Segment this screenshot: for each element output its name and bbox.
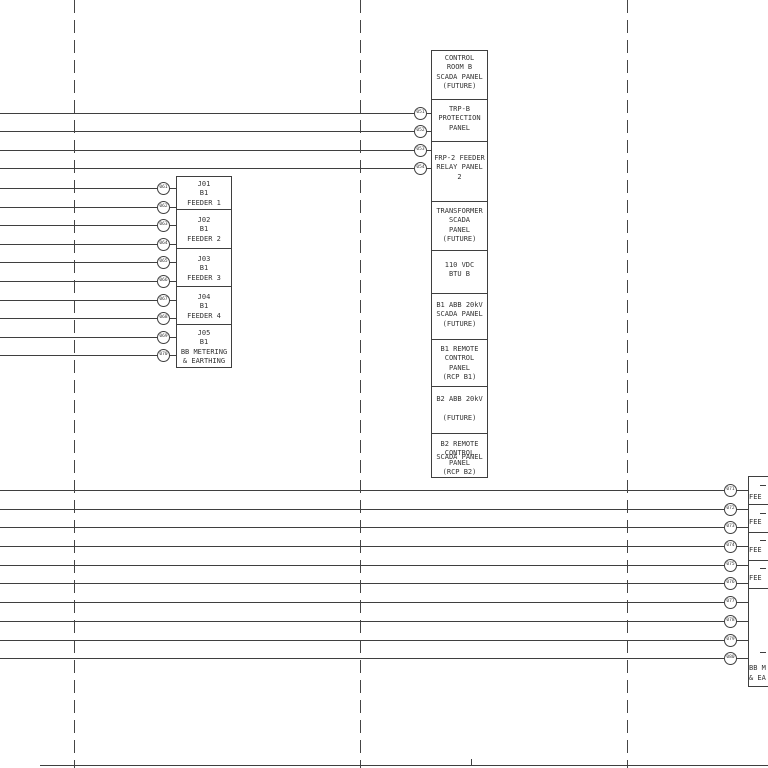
cable-tag: 073	[724, 521, 737, 534]
panel-cell-line: FEE	[749, 546, 762, 554]
cable-line	[0, 527, 724, 528]
panel-cell-b1-abb-scada: B1 ABB 20kV SCADA PANEL (FUTURE)	[432, 293, 487, 339]
zone-separator-line-2	[360, 0, 361, 768]
panel-cell-line: PROTECTION	[432, 114, 487, 123]
cable-stub	[736, 658, 748, 659]
cable-tag: 076	[724, 577, 737, 590]
panel-cell-line: (FUTURE)	[432, 414, 487, 423]
panel-cell-line: SCADA PANEL	[432, 310, 487, 319]
panel-cell-line: B1	[177, 264, 231, 273]
cable-stub	[736, 583, 748, 584]
panel-cell-line: BTU B	[432, 270, 487, 279]
cable-tag: 074	[724, 540, 737, 553]
cable-line	[0, 509, 724, 510]
panel-cell-line: (FUTURE)	[432, 82, 487, 91]
panel-cell-line: FEE	[749, 493, 762, 501]
panel-cell-divider	[749, 532, 768, 533]
panel-cell-b1-remote: B1 REMOTE CONTROL PANEL (RCP B1)	[432, 339, 487, 386]
panel-cell-110vdc: 110 VDC BTU B	[432, 250, 487, 293]
cable-tag: 069	[157, 331, 170, 344]
panel-cell-j02: J02 B1 FEEDER 2	[177, 209, 231, 248]
cable-stub	[736, 640, 748, 641]
cable-line	[0, 640, 724, 641]
panel-cell-line: J01	[177, 180, 231, 189]
panel-cell-line: ROOM B	[432, 63, 487, 72]
cable-line	[0, 131, 414, 132]
cable-line	[0, 546, 724, 547]
sheet-border-tick	[471, 759, 472, 765]
panel-cell-line: & EA	[749, 674, 766, 682]
panel-cell-line: (RCP B2)	[432, 468, 487, 477]
cable-tag: 053	[414, 144, 427, 157]
panel-cell-overlap-text: SCADA PANEL	[432, 453, 487, 462]
panel-stack-top: CONTROL ROOM B SCADA PANEL (FUTURE) TRP-…	[431, 50, 488, 478]
cable-tag: 066	[157, 275, 170, 288]
panel-cell-line: 2	[432, 173, 487, 182]
cable-line	[0, 225, 157, 226]
panel-cell-b2-abb: B2 ABB 20kV (FUTURE)	[432, 386, 487, 432]
panel-cell-line: RELAY PANEL	[432, 163, 487, 172]
cut-text-mark	[760, 540, 766, 541]
panel-cell-trp-b: TRP-B PROTECTION PANEL	[432, 99, 487, 141]
panel-cell-line: SCADA	[432, 216, 487, 225]
panel-cell-line: 110 VDC	[432, 261, 487, 270]
cable-line	[0, 621, 724, 622]
cable-line	[0, 168, 414, 169]
cable-stub	[736, 602, 748, 603]
panel-cell-divider	[749, 504, 768, 505]
cable-tag: 054	[414, 162, 427, 175]
panel-cell-line: PANEL	[432, 124, 487, 133]
cable-line	[0, 207, 157, 208]
panel-cell-line: J05	[177, 329, 231, 338]
cut-text-mark	[760, 652, 766, 653]
cable-line	[0, 150, 414, 151]
panel-cell-line: BB METERING	[177, 348, 231, 357]
cable-tag: 064	[157, 238, 170, 251]
cut-text-mark	[760, 485, 766, 486]
cable-line	[0, 583, 724, 584]
cable-tag: 051	[414, 107, 427, 120]
cable-line	[0, 113, 414, 114]
panel-cell-line: B1	[177, 338, 231, 347]
cable-line	[0, 337, 157, 338]
cable-stub	[736, 527, 748, 528]
cable-tag: 052	[414, 125, 427, 138]
panel-cell-b2-remote: B2 REMOTE CONTROL PANEL (RCP B2) SCADA P…	[432, 433, 487, 479]
zone-separator-line-3	[627, 0, 628, 768]
cable-tag: 063	[157, 219, 170, 232]
cable-tag: 065	[157, 256, 170, 269]
cable-line	[0, 602, 724, 603]
drawing-sheet: { "colors": {"line": "#3f3f3f", "text": …	[0, 0, 768, 768]
panel-cell-line: CONTROL	[432, 354, 487, 363]
panel-cell-line: CONTROL	[432, 54, 487, 63]
panel-cell-j03: J03 B1 FEEDER 3	[177, 248, 231, 286]
cable-tag: 070	[157, 349, 170, 362]
panel-cell-line	[432, 404, 487, 413]
panel-cell-line: SCADA PANEL	[432, 73, 487, 82]
cable-stub	[736, 509, 748, 510]
panel-cell-transformer-scada: TRANSFORMER SCADA PANEL (FUTURE)	[432, 201, 487, 250]
cable-line	[0, 318, 157, 319]
cable-line	[0, 658, 724, 659]
cable-tag: 068	[157, 312, 170, 325]
cut-text-mark	[760, 568, 766, 569]
panel-cell-line: FEE	[749, 574, 762, 582]
panel-cell-line: (FUTURE)	[432, 235, 487, 244]
cable-line	[0, 188, 157, 189]
panel-cell-line: PANEL	[432, 226, 487, 235]
cable-line	[0, 355, 157, 356]
cable-tag: 067	[157, 294, 170, 307]
cut-text-mark	[760, 513, 766, 514]
panel-cell-divider	[749, 588, 768, 589]
panel-cell-line: J02	[177, 216, 231, 225]
cable-line	[0, 244, 157, 245]
panel-cell-line: FRP-2 FEEDER	[432, 154, 487, 163]
cable-stub	[736, 565, 748, 566]
panel-cell-j01: J01 B1 FEEDER 1	[177, 177, 231, 209]
panel-cell-line: FEEDER 1	[177, 199, 231, 208]
panel-cell-line: (FUTURE)	[432, 320, 487, 329]
panel-cell-line: B1 ABB 20kV	[432, 301, 487, 310]
panel-stack-left: J01 B1 FEEDER 1 J02 B1 FEEDER 2 J03 B1 F…	[176, 176, 232, 368]
sheet-border-bottom	[40, 765, 768, 766]
panel-cell-line: B1	[177, 302, 231, 311]
panel-cell-divider	[749, 560, 768, 561]
panel-cell-line: BB M	[749, 664, 766, 672]
cable-tag: 061	[157, 182, 170, 195]
panel-cell-line: FEEDER 3	[177, 274, 231, 283]
cable-line	[0, 300, 157, 301]
panel-cell-line: FEE	[749, 518, 762, 526]
cable-tag: 080	[724, 652, 737, 665]
cable-stub	[736, 621, 748, 622]
panel-cell-frp-2: FRP-2 FEEDER RELAY PANEL 2	[432, 141, 487, 201]
panel-cell-line: B1	[177, 189, 231, 198]
panel-cell-j05: J05 B1 BB METERING & EARTHING	[177, 324, 231, 369]
cable-line	[0, 262, 157, 263]
cable-line	[0, 565, 724, 566]
panel-cell-line: B2 REMOTE	[432, 440, 487, 449]
cable-tag: 075	[724, 559, 737, 572]
cable-line	[0, 281, 157, 282]
cable-tag: 079	[724, 634, 737, 647]
panel-cell-line: TRANSFORMER	[432, 207, 487, 216]
cable-line	[0, 490, 724, 491]
panel-cell-control-room-b: CONTROL ROOM B SCADA PANEL (FUTURE)	[432, 51, 487, 99]
panel-cell-line: B1	[177, 225, 231, 234]
cable-tag: 078	[724, 615, 737, 628]
panel-cell-line: PANEL	[432, 364, 487, 373]
panel-cell-line: J03	[177, 255, 231, 264]
zone-separator-line-1	[74, 0, 75, 768]
cable-tag: 072	[724, 503, 737, 516]
panel-cell-line: (RCP B1)	[432, 373, 487, 382]
cable-stub	[736, 546, 748, 547]
panel-cell-line: B2 ABB 20kV	[432, 395, 487, 404]
panel-cell-line: & EARTHING	[177, 357, 231, 366]
panel-cell-line: TRP-B	[432, 105, 487, 114]
panel-cell-j04: J04 B1 FEEDER 4	[177, 286, 231, 324]
cable-tag: 071	[724, 484, 737, 497]
panel-cell-line: B1 REMOTE	[432, 345, 487, 354]
cable-stub	[736, 490, 748, 491]
cable-tag: 062	[157, 201, 170, 214]
panel-cell-line: FEEDER 4	[177, 312, 231, 321]
panel-cell-line: J04	[177, 293, 231, 302]
cable-tag: 077	[724, 596, 737, 609]
panel-cell-line: FEEDER 2	[177, 235, 231, 244]
